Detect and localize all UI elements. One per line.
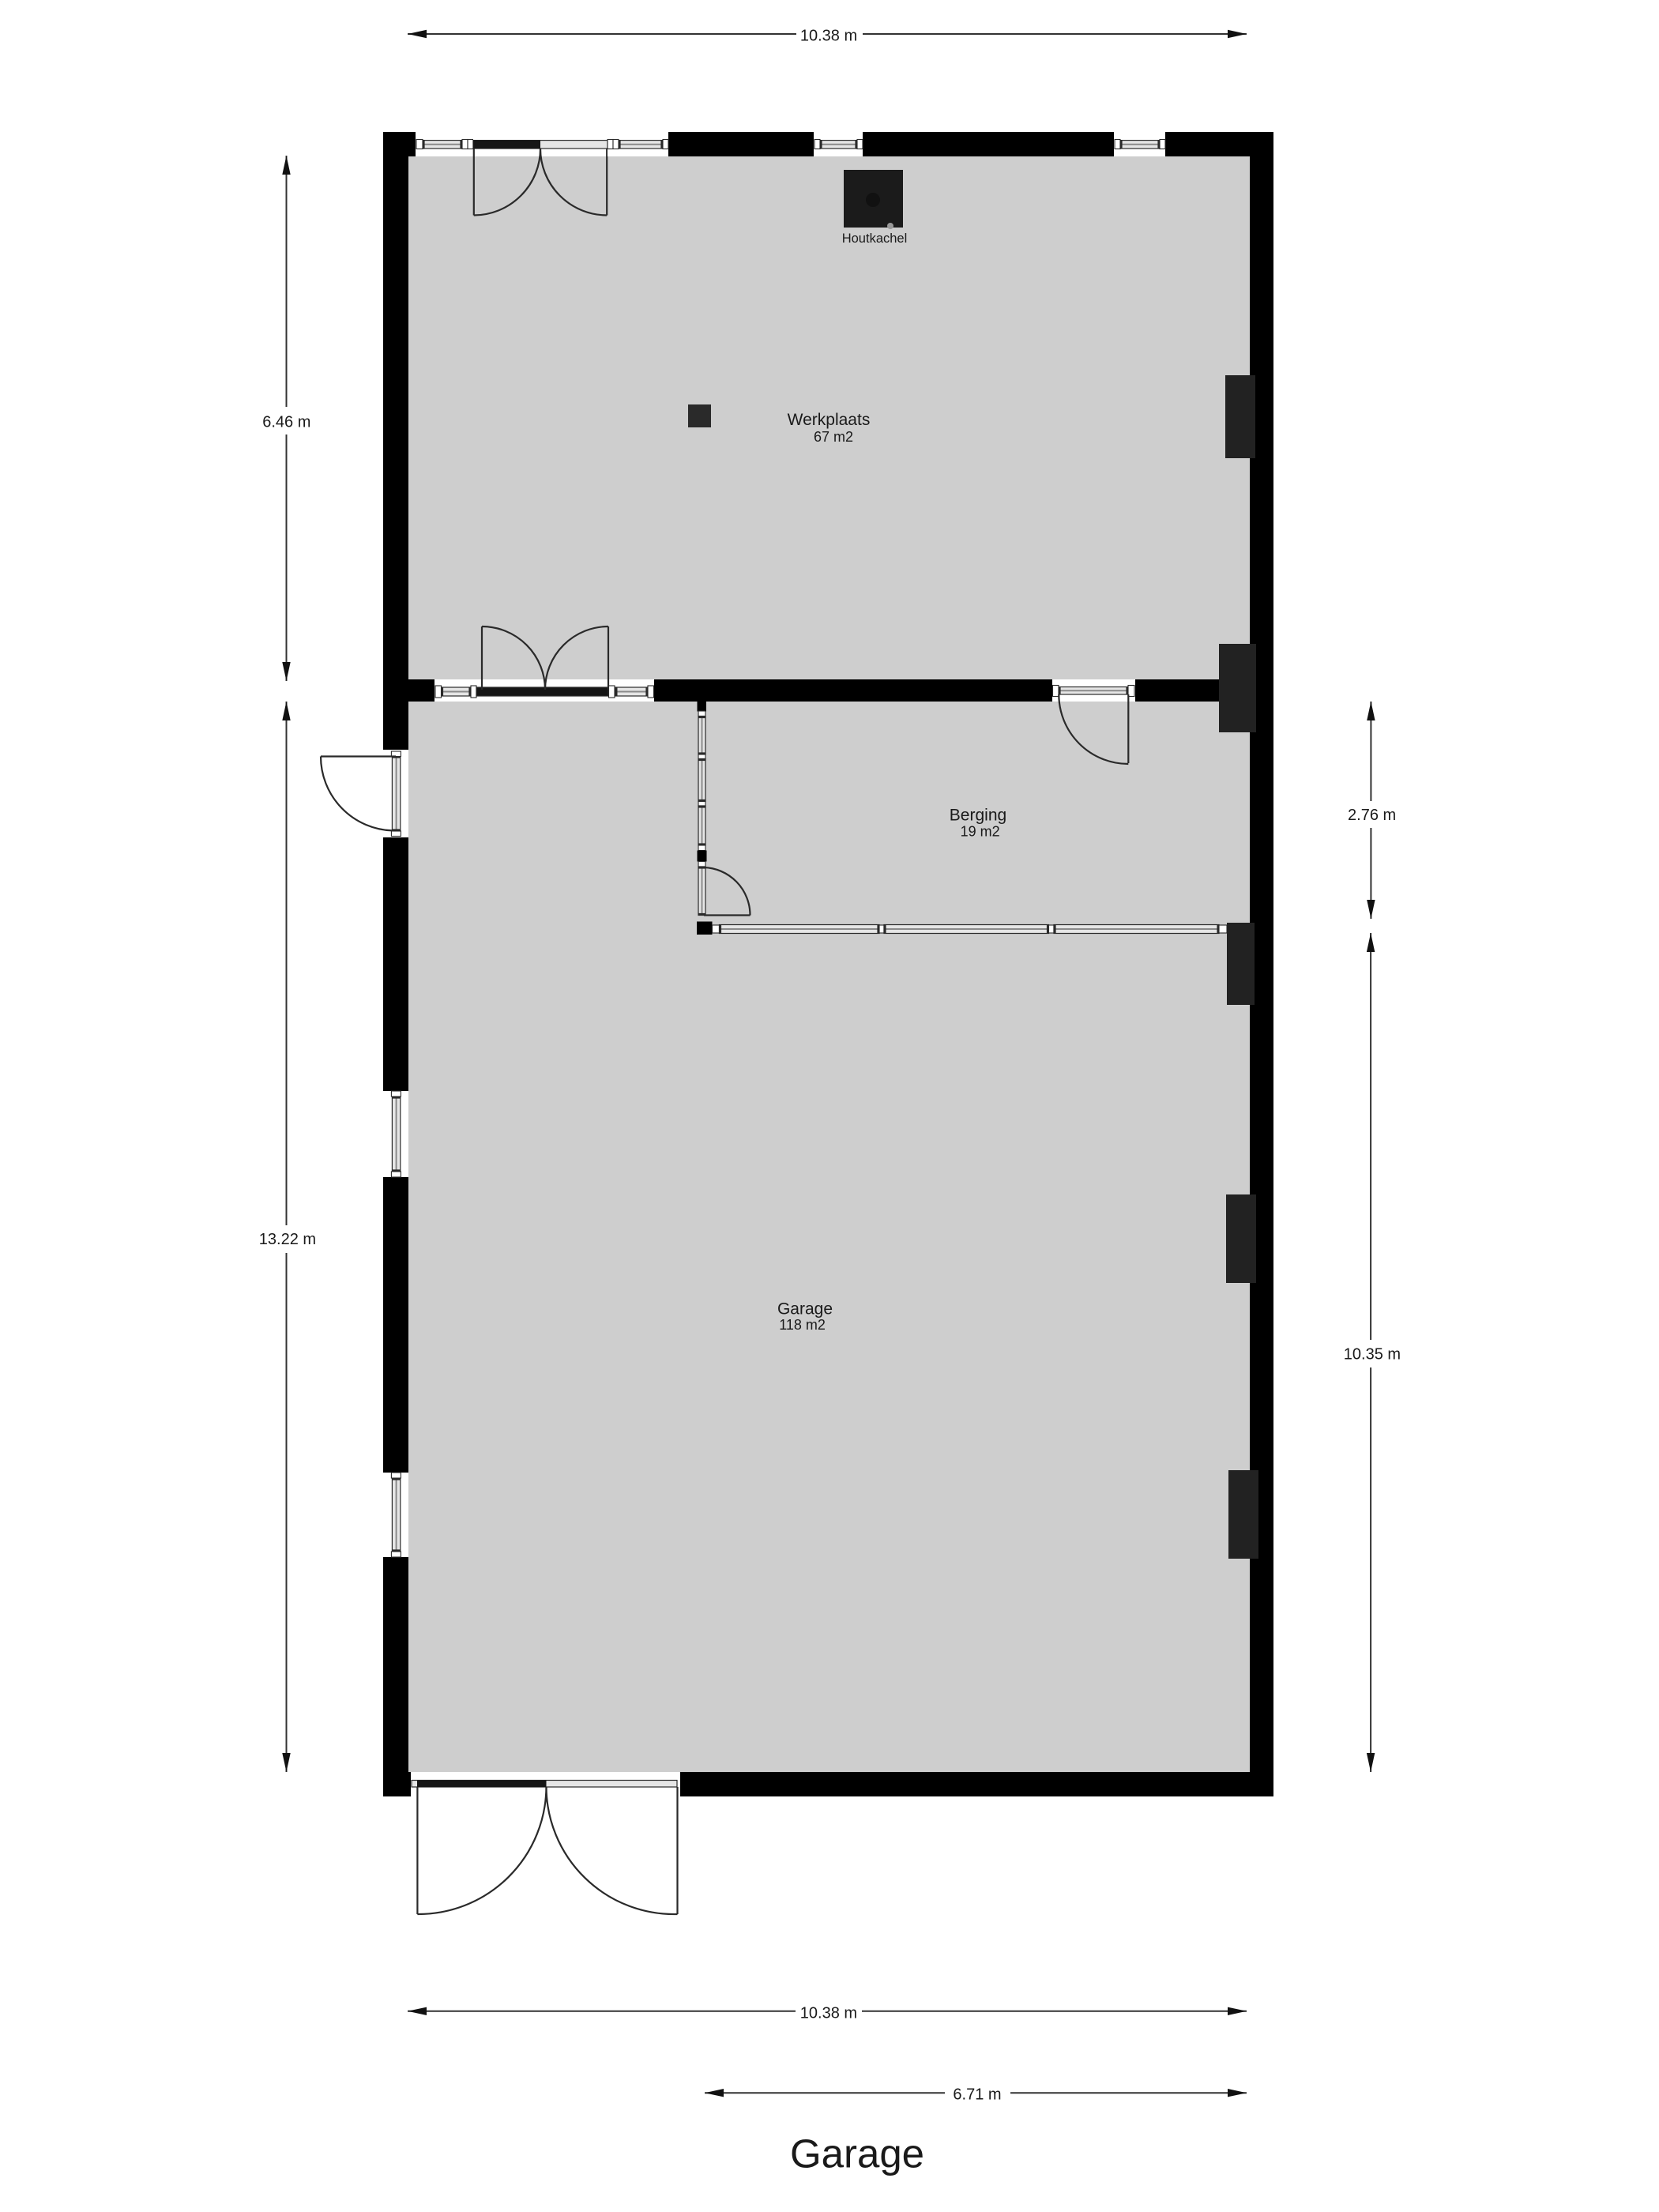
svg-text:6.46 m: 6.46 m	[262, 414, 310, 431]
svg-text:19 m2: 19 m2	[961, 824, 1000, 840]
svg-text:118 m2: 118 m2	[779, 1317, 826, 1333]
svg-text:10.38 m: 10.38 m	[800, 2004, 857, 2022]
svg-text:2.76 m: 2.76 m	[1348, 807, 1396, 824]
svg-text:10.38 m: 10.38 m	[800, 28, 857, 45]
svg-text:67 m2: 67 m2	[814, 429, 853, 445]
svg-text:6.71 m: 6.71 m	[953, 2086, 1001, 2104]
svg-text:13.22 m: 13.22 m	[259, 1231, 316, 1248]
svg-text:Garage: Garage	[790, 2131, 924, 2176]
svg-text:Werkplaats: Werkplaats	[788, 411, 871, 429]
svg-text:Houtkachel: Houtkachel	[842, 231, 908, 246]
svg-text:Garage: Garage	[777, 1300, 833, 1318]
svg-text:10.35 m: 10.35 m	[1344, 1346, 1401, 1364]
svg-text:Berging: Berging	[950, 807, 1006, 825]
